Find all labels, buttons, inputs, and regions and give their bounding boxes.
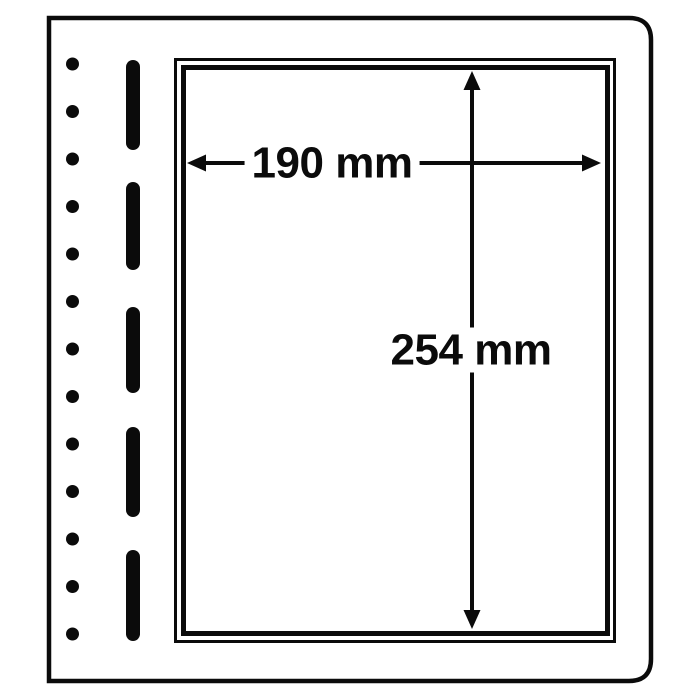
binding-slot	[126, 307, 140, 393]
binding-hole	[66, 153, 79, 166]
binding-hole	[66, 438, 79, 451]
binding-slot	[126, 550, 140, 641]
binding-slots	[126, 60, 140, 641]
binding-hole	[66, 105, 79, 118]
binding-hole	[66, 58, 79, 71]
binding-hole	[66, 248, 79, 261]
binding-hole	[66, 295, 79, 308]
binding-hole	[66, 485, 79, 498]
pocket-width-label: 190 mm	[245, 141, 420, 186]
pocket-height-label: 254 mm	[382, 328, 561, 373]
binding-hole	[66, 628, 79, 641]
binding-slot	[126, 427, 140, 517]
binding-hole	[66, 533, 79, 546]
binding-hole	[66, 343, 79, 356]
binding-hole	[66, 200, 79, 213]
album-page-diagram: 190 mm 254 mm	[0, 0, 700, 700]
binding-slot	[126, 60, 140, 150]
binding-slot	[126, 182, 140, 270]
binding-hole	[66, 580, 79, 593]
binding-hole	[66, 390, 79, 403]
page-graphic	[0, 0, 700, 700]
